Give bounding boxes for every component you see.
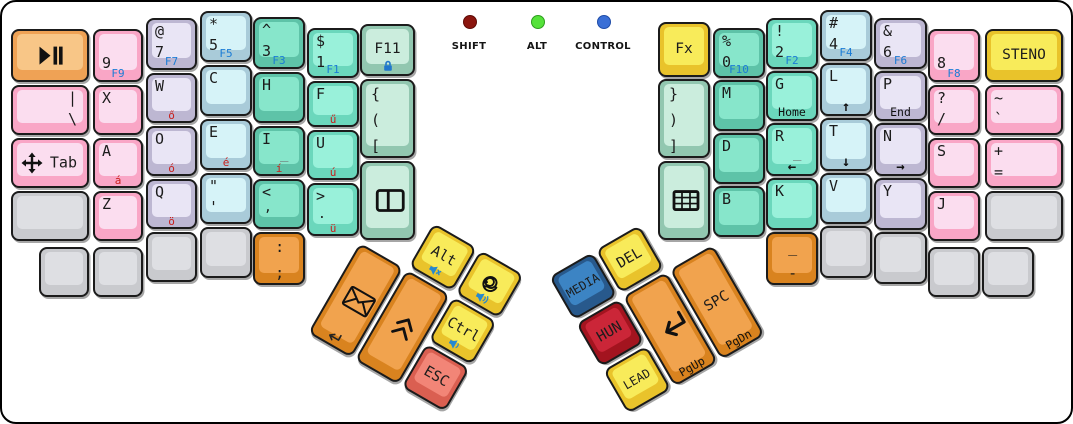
keytop bbox=[45, 252, 83, 285]
key-label: D bbox=[722, 139, 731, 154]
keytop bbox=[880, 237, 921, 272]
key-d[interactable]: D bbox=[713, 133, 765, 184]
key-hash-4[interactable]: #4F4 bbox=[820, 10, 872, 61]
key-label: ó bbox=[148, 163, 195, 174]
keyboard-layout-view: AltCtrlESCMEDIADELHUNLEADPgUpSPCPgDn|\Ta… bbox=[0, 0, 1073, 424]
key-percent-0[interactable]: %0F10 bbox=[713, 28, 765, 78]
key-label: \ bbox=[68, 112, 77, 127]
led-label-alt: ALT bbox=[527, 41, 547, 52]
key-label: , bbox=[264, 201, 272, 214]
key-blank-l4[interactable] bbox=[146, 232, 197, 282]
key-b[interactable]: B bbox=[713, 186, 765, 237]
key-label: N bbox=[883, 129, 892, 144]
key-label: : bbox=[275, 240, 284, 255]
key-r[interactable]: R_← bbox=[766, 123, 818, 176]
keyboard: AltCtrlESCMEDIADELHUNLEADPgUpSPCPgDn|\Ta… bbox=[0, 0, 1073, 424]
key-label: F3 bbox=[255, 55, 303, 66]
key-label: I bbox=[262, 132, 271, 147]
key-label: G bbox=[775, 77, 784, 92]
key-label: X bbox=[102, 91, 111, 106]
key-label: | bbox=[68, 91, 77, 106]
keytop bbox=[17, 196, 83, 229]
key-quote-apostrophe[interactable]: "' bbox=[200, 173, 252, 224]
key-blank-r4[interactable] bbox=[985, 191, 1063, 241]
key-label: _ bbox=[280, 147, 288, 161]
key-t[interactable]: T↓ bbox=[820, 118, 872, 171]
key-label: E bbox=[209, 125, 218, 140]
grid-table-icon bbox=[672, 189, 696, 211]
key-asterisk-5[interactable]: *5F5 bbox=[200, 11, 252, 62]
keytop bbox=[991, 196, 1057, 229]
key-plus-equals[interactable]: += bbox=[985, 138, 1063, 188]
key-brace-paren-bracket-open[interactable]: {([ bbox=[360, 79, 415, 158]
key-label: ↓ bbox=[822, 155, 870, 169]
key-label: F7 bbox=[148, 56, 195, 67]
key-blank-l3[interactable] bbox=[93, 247, 143, 297]
key-p[interactable]: PEnd bbox=[874, 71, 927, 121]
key-label: @ bbox=[155, 24, 164, 39]
key-greater-period[interactable]: >.ü bbox=[307, 183, 359, 236]
key-c[interactable]: C bbox=[200, 65, 252, 116]
key-i[interactable]: I_í bbox=[253, 126, 305, 176]
window-split-icon bbox=[375, 188, 401, 212]
key-label: A bbox=[102, 144, 111, 159]
key-tilde-backtick[interactable]: ~` bbox=[985, 85, 1063, 135]
key-label: - bbox=[788, 266, 797, 281]
key-z[interactable]: Z bbox=[93, 191, 143, 241]
key-n[interactable]: N→ bbox=[874, 123, 927, 176]
key-9[interactable]: 9F9 bbox=[93, 29, 143, 82]
key-label: W bbox=[155, 79, 164, 94]
led-alt bbox=[531, 15, 545, 29]
key-x[interactable]: X bbox=[93, 85, 143, 135]
key-label: _ bbox=[793, 146, 801, 160]
key-label: # bbox=[829, 16, 838, 31]
key-label: ← bbox=[768, 160, 816, 174]
key-at-7[interactable]: @7F7 bbox=[146, 18, 197, 70]
key-label: F1 bbox=[309, 64, 357, 75]
key-blank-l2[interactable] bbox=[39, 247, 89, 297]
key-label: ; bbox=[275, 266, 284, 281]
key-label: } bbox=[669, 87, 678, 102]
key-label: F8 bbox=[930, 68, 978, 79]
keytop bbox=[988, 252, 1028, 285]
key-8[interactable]: 8F8 bbox=[928, 29, 980, 82]
key-label: B bbox=[722, 192, 731, 207]
key-blank-l5[interactable] bbox=[200, 227, 252, 278]
key-label: ' bbox=[209, 200, 218, 215]
key-label: ú bbox=[309, 167, 357, 178]
key-tab[interactable]: Tab bbox=[11, 138, 89, 188]
key-label: F5 bbox=[202, 48, 250, 59]
key-question-slash[interactable]: ?/ bbox=[928, 85, 980, 135]
key-label: % bbox=[722, 34, 731, 49]
key-brace-paren-bracket-close[interactable]: })] bbox=[658, 79, 710, 158]
key-a[interactable]: Aá bbox=[93, 138, 143, 188]
key-label: U bbox=[316, 136, 325, 151]
key-blank-r5[interactable] bbox=[982, 247, 1034, 297]
key-pipe-backslash[interactable]: |\ bbox=[11, 85, 89, 135]
key-label: ? bbox=[937, 91, 946, 106]
keytop bbox=[99, 252, 137, 285]
key-label: F10 bbox=[715, 64, 763, 75]
key-label: . bbox=[318, 208, 326, 221]
key-label: F2 bbox=[768, 55, 816, 66]
key-label: Tab bbox=[50, 156, 77, 171]
key-steno[interactable]: STENO bbox=[985, 29, 1063, 82]
key-label: é bbox=[202, 157, 250, 168]
keytop bbox=[826, 231, 866, 266]
key-f11[interactable]: F11 bbox=[360, 24, 415, 76]
key-o[interactable]: Oó bbox=[146, 126, 197, 176]
key-label: $ bbox=[316, 34, 325, 49]
key-label: + bbox=[994, 144, 1003, 159]
key-label: O bbox=[155, 132, 164, 147]
key-label: K bbox=[775, 184, 784, 199]
key-label: Home bbox=[768, 107, 816, 119]
led-shift bbox=[463, 15, 477, 29]
key-label: ` bbox=[994, 112, 1003, 127]
key-label: → bbox=[876, 160, 925, 174]
keytop bbox=[934, 252, 974, 285]
key-label: " bbox=[209, 179, 218, 194]
key-play-pause[interactable] bbox=[11, 29, 89, 82]
key-label: F4 bbox=[822, 47, 870, 58]
key-label: { bbox=[371, 87, 380, 102]
key-label: ^ bbox=[262, 23, 271, 38]
key-q[interactable]: Qö bbox=[146, 179, 197, 229]
key-caret-3[interactable]: ^3F3 bbox=[253, 17, 305, 69]
led-label-shift: SHIFT bbox=[452, 41, 486, 52]
key-label: _ bbox=[788, 240, 797, 255]
key-window-split[interactable] bbox=[360, 161, 415, 240]
key-excl-2[interactable]: !2F2 bbox=[766, 18, 818, 69]
key-amp-6[interactable]: &6F6 bbox=[874, 18, 927, 69]
key-label: < bbox=[262, 185, 271, 200]
key-label: í bbox=[255, 163, 303, 174]
key-label: ) bbox=[669, 113, 678, 128]
key-l[interactable]: L↑ bbox=[820, 63, 872, 116]
keytop bbox=[152, 237, 191, 270]
key-e[interactable]: Eé bbox=[200, 119, 252, 170]
key-grid-table[interactable] bbox=[658, 161, 710, 240]
key-label: V bbox=[829, 179, 838, 194]
led-control bbox=[597, 15, 611, 29]
key-g[interactable]: GHome bbox=[766, 71, 818, 121]
lock-icon bbox=[382, 60, 394, 72]
key-label: * bbox=[209, 17, 218, 32]
key-label: R bbox=[775, 129, 784, 144]
key-blank-r2[interactable] bbox=[874, 232, 927, 284]
key-label: STENO bbox=[987, 48, 1061, 63]
key-underscore-dash[interactable]: _- bbox=[766, 232, 818, 285]
key-label: Y bbox=[883, 184, 892, 199]
key-fx[interactable]: Fx bbox=[658, 22, 710, 77]
key-label: J bbox=[937, 197, 946, 212]
key-label: H bbox=[262, 78, 271, 93]
key-label: Fx bbox=[660, 42, 708, 57]
key-w[interactable]: Wő bbox=[146, 73, 197, 123]
key-label: ű bbox=[309, 114, 357, 125]
key-dollar-1[interactable]: $1F1 bbox=[307, 28, 359, 78]
key-label: ő bbox=[148, 110, 195, 121]
key-colon-semicolon[interactable]: :; bbox=[253, 232, 305, 285]
key-label: > bbox=[316, 189, 325, 204]
key-label: F bbox=[316, 87, 325, 102]
key-label: & bbox=[883, 24, 892, 39]
led-label-control: CONTROL bbox=[575, 41, 631, 52]
key-label: ↑ bbox=[822, 100, 870, 114]
key-label: P bbox=[883, 77, 892, 92]
key-label: ö bbox=[148, 216, 195, 227]
key-h[interactable]: H bbox=[253, 72, 305, 123]
key-label: ~ bbox=[994, 91, 1003, 106]
key-label: á bbox=[95, 175, 141, 186]
key-j[interactable]: J bbox=[928, 191, 980, 241]
key-blank-l1[interactable] bbox=[11, 191, 89, 241]
key-blank-r3[interactable] bbox=[928, 247, 980, 297]
key-label: C bbox=[209, 71, 218, 86]
key-label: ] bbox=[669, 139, 678, 154]
key-label: L bbox=[829, 69, 838, 84]
keytop bbox=[206, 232, 246, 266]
key-label: F11 bbox=[362, 42, 413, 57]
key-label: / bbox=[937, 112, 946, 127]
key-u[interactable]: Uú bbox=[307, 130, 359, 180]
play-pause-icon bbox=[32, 45, 69, 65]
key-m[interactable]: M bbox=[713, 80, 765, 131]
key-blank-r1[interactable] bbox=[820, 226, 872, 278]
key-label: M bbox=[722, 86, 731, 101]
key-label: ü bbox=[309, 223, 357, 234]
key-s[interactable]: S bbox=[928, 138, 980, 188]
key-label: [ bbox=[371, 139, 380, 154]
move-icon bbox=[21, 152, 43, 174]
key-v[interactable]: V bbox=[820, 173, 872, 224]
key-label: End bbox=[876, 107, 925, 119]
key-k[interactable]: K bbox=[766, 178, 818, 230]
key-label: = bbox=[994, 165, 1003, 180]
key-label: F9 bbox=[95, 68, 141, 79]
key-label: F6 bbox=[876, 55, 925, 66]
key-y[interactable]: Y bbox=[874, 178, 927, 230]
key-label: ! bbox=[775, 24, 784, 39]
key-label: Q bbox=[155, 185, 164, 200]
key-label: T bbox=[829, 124, 838, 139]
key-label: S bbox=[937, 144, 946, 159]
key-label: Z bbox=[102, 197, 111, 212]
key-less-comma[interactable]: <, bbox=[253, 179, 305, 229]
key-label: ( bbox=[371, 113, 380, 128]
key-f[interactable]: Fű bbox=[307, 81, 359, 127]
